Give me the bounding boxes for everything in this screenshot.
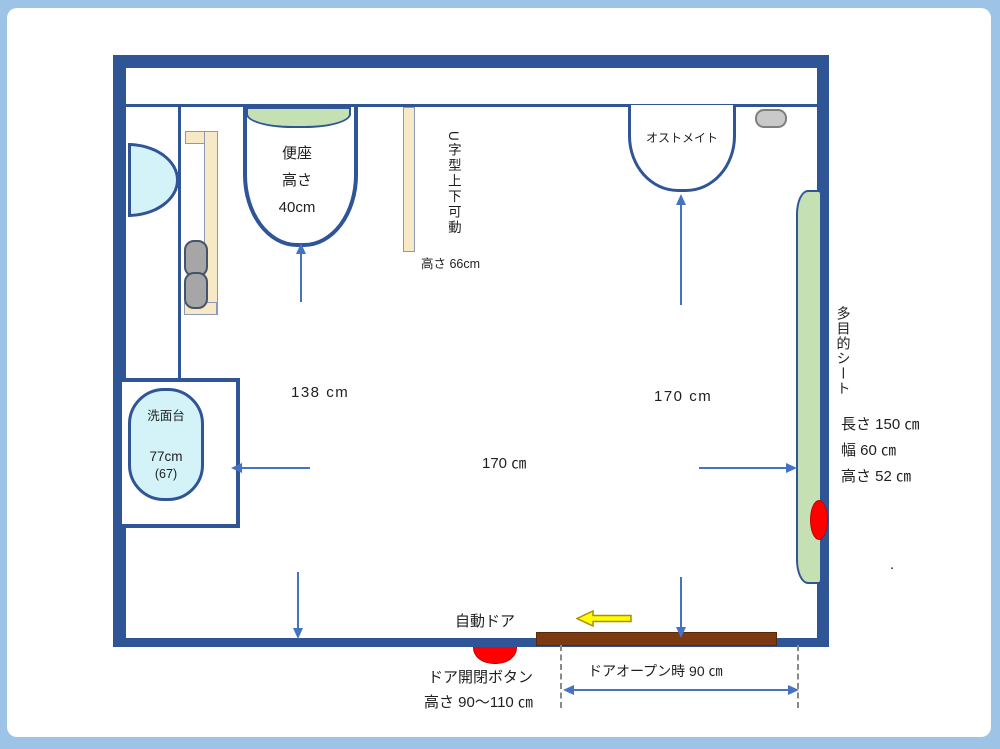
door-open-width-label: ドアオープン時 90 ㎝ xyxy=(588,663,723,681)
washbasin-height: 77cm xyxy=(131,449,201,466)
ostomate-label: オストメイト xyxy=(631,105,733,146)
door-panel xyxy=(536,632,777,646)
handrail-label: U字型上下可動 xyxy=(444,131,461,236)
arrow-down-left-line xyxy=(297,572,299,629)
door-opening-guide-right xyxy=(797,645,799,708)
arrow-right-sheet-line xyxy=(699,467,788,469)
door-open-width-arrow-head-right xyxy=(788,685,799,695)
arrow-up-toilet-head xyxy=(296,243,306,254)
ceiling-fixture xyxy=(755,109,787,128)
floorplan-diagram: 便座 高さ 40cm U字型上下可動 高さ 66cm オストメイト 多目的シート… xyxy=(0,0,1000,749)
sheet-label: 多目的シート xyxy=(834,306,852,396)
handrail-height-label: 高さ 66cm xyxy=(421,257,480,273)
door-opening-guide-left xyxy=(560,645,562,708)
auto-door-label: 自動ドア xyxy=(455,613,515,632)
arrow-left-washbasin-line xyxy=(241,467,310,469)
toilet-label-line: 40cm xyxy=(247,194,347,221)
sheet-specs: 長さ 150 ㎝ 幅 60 ㎝ 高さ 52 ㎝ xyxy=(841,412,919,490)
dimension-label-138: 138 cm xyxy=(291,384,349,403)
wall-left xyxy=(113,55,126,647)
arrow-up-ostomate-head xyxy=(676,194,686,205)
stray-mark: . xyxy=(890,556,894,575)
door-button-label: ドア開閉ボタン xyxy=(428,669,533,688)
toilet-label-line: 高さ xyxy=(247,167,347,194)
paper-roll xyxy=(184,272,208,309)
arrow-right-sheet-head xyxy=(786,463,797,473)
washbasin-height-alt: (67) xyxy=(131,467,201,483)
arrow-left-washbasin-head xyxy=(231,463,242,473)
sheet-spec-width: 幅 60 ㎝ xyxy=(841,438,919,464)
arrow-up-ostomate-line xyxy=(680,204,682,305)
door-slide-direction-arrow xyxy=(576,610,632,627)
handrail-bar xyxy=(403,107,415,252)
door-button-height-label: 高さ 90～110 ㎝ xyxy=(424,694,533,713)
wall-top xyxy=(113,55,829,68)
dimension-label-170-right: 170 cm xyxy=(654,388,712,407)
toilet-label: 便座 高さ 40cm xyxy=(247,140,347,221)
dimension-label-170-center: 170 ㎝ xyxy=(482,455,526,474)
door-open-width-arrow-head-left xyxy=(563,685,574,695)
arrow-down-right-line xyxy=(680,577,682,628)
arrow-up-toilet-line xyxy=(300,253,302,302)
partition-line xyxy=(178,107,181,378)
sheet-spec-height: 高さ 52 ㎝ xyxy=(841,464,919,490)
washbasin-bowl: 洗面台 77cm (67) xyxy=(128,388,204,501)
door-open-width-arrow-line xyxy=(574,689,790,691)
sheet-spec-length: 長さ 150 ㎝ xyxy=(841,412,919,438)
washbasin-label: 洗面台 xyxy=(131,409,201,425)
sheet-release-knob xyxy=(810,500,828,540)
arrow-down-left-head xyxy=(293,628,303,639)
arrow-down-right-head xyxy=(676,627,686,638)
toilet-label-line: 便座 xyxy=(247,140,347,167)
